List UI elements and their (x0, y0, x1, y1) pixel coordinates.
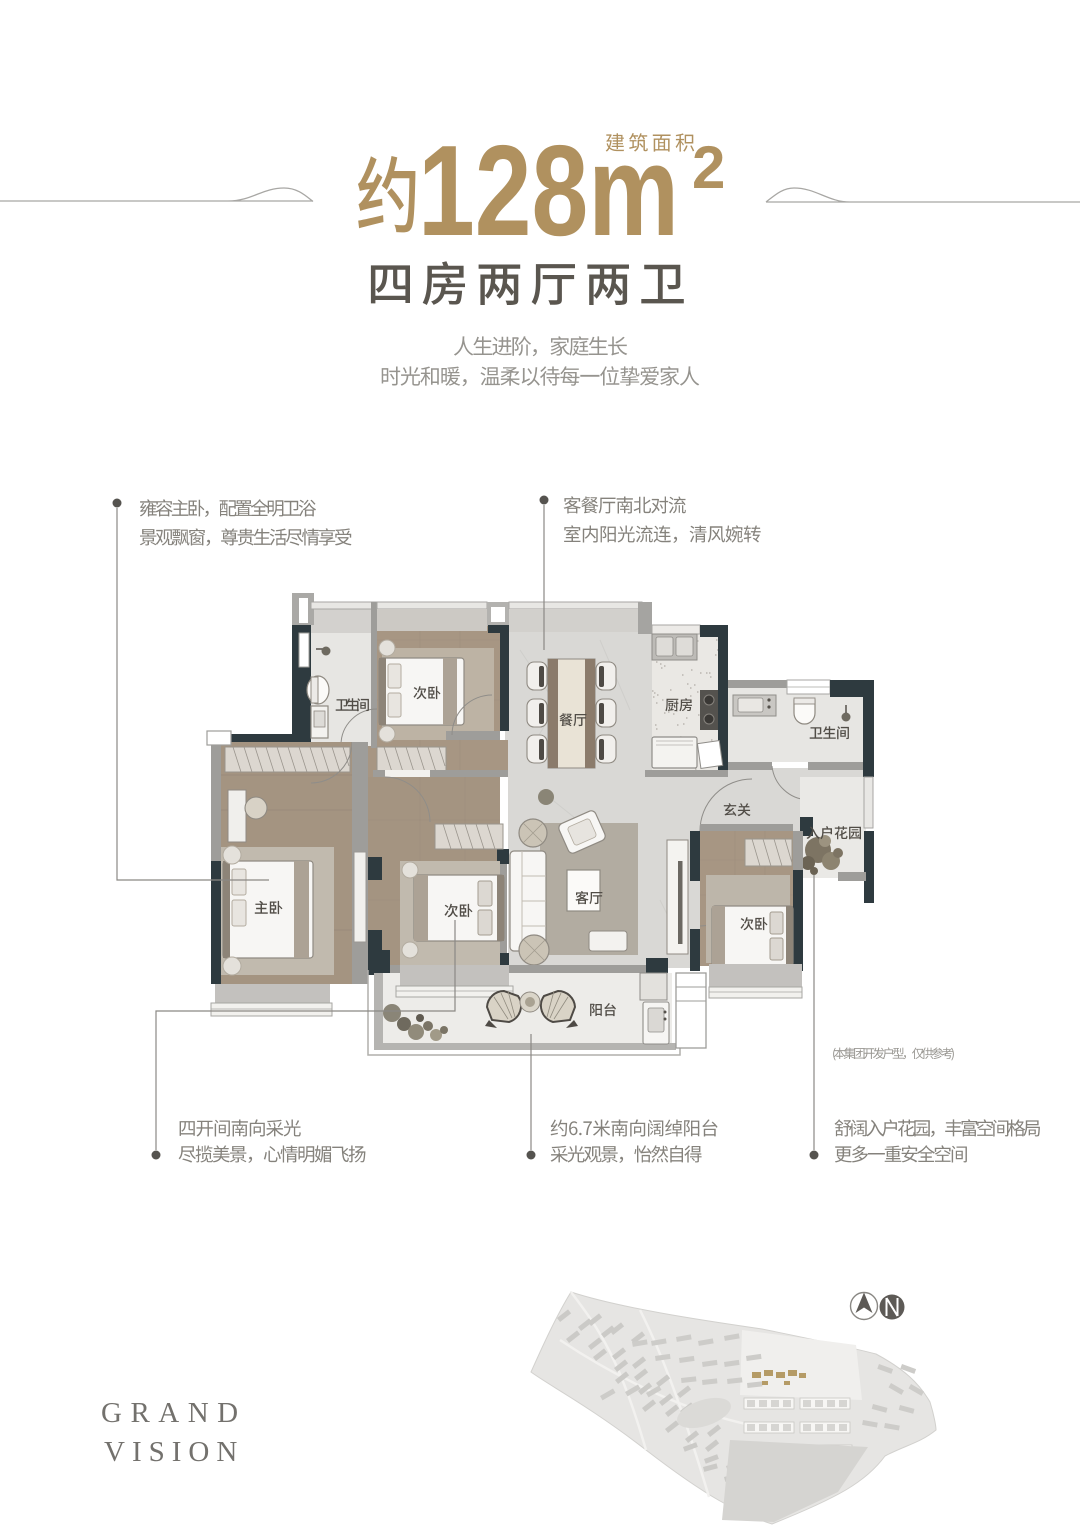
svg-text:VISION: VISION (104, 1436, 244, 1468)
svg-text:128m: 128m (418, 119, 679, 263)
svg-text:2: 2 (692, 134, 725, 201)
svg-text:GRAND: GRAND (101, 1397, 247, 1429)
